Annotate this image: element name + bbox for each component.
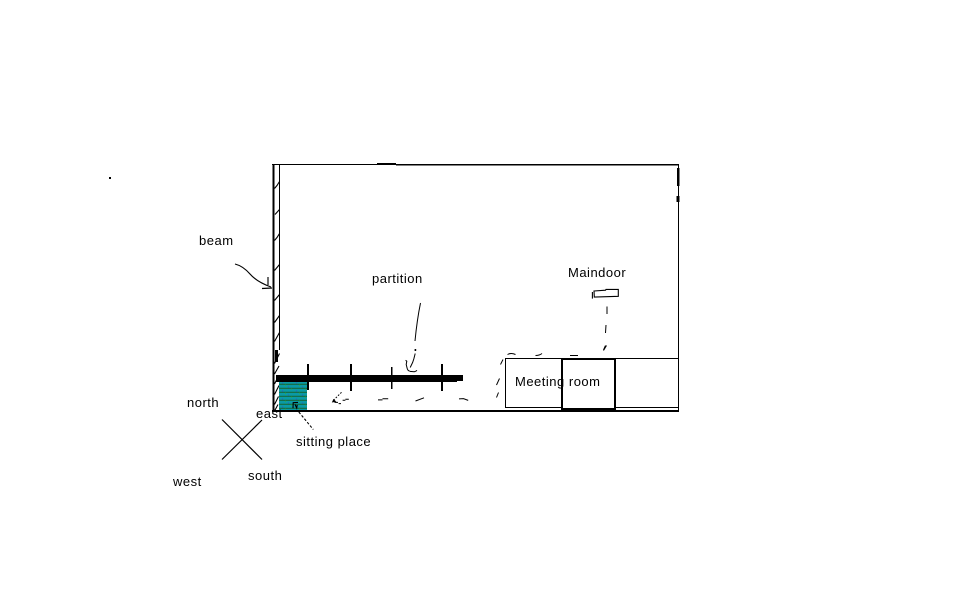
svg-text:Meeting room: Meeting room xyxy=(515,374,600,389)
svg-text:partition: partition xyxy=(372,271,423,286)
svg-text:east: east xyxy=(256,406,283,421)
svg-text:north: north xyxy=(187,395,219,410)
svg-text:sitting place: sitting place xyxy=(296,434,371,449)
svg-text:beam: beam xyxy=(199,233,234,248)
svg-text:south: south xyxy=(248,468,282,483)
svg-text:west: west xyxy=(172,474,202,489)
svg-text:Maindoor: Maindoor xyxy=(568,265,626,280)
